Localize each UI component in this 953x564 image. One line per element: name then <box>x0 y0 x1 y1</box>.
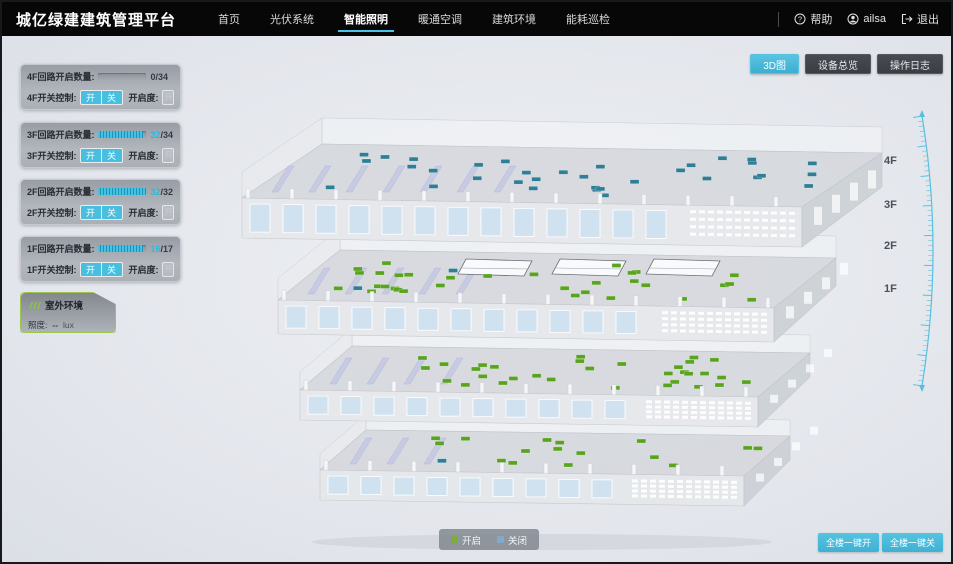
column <box>304 380 308 390</box>
column <box>700 386 704 396</box>
perforation <box>641 495 647 498</box>
perforation <box>744 234 750 237</box>
facade-window <box>526 479 546 497</box>
light-marker-closed <box>532 177 541 181</box>
side-perforation <box>840 263 848 275</box>
perforation <box>691 416 697 419</box>
facade-window <box>616 311 636 333</box>
perforation <box>734 318 740 321</box>
column <box>282 290 286 300</box>
column <box>546 294 550 304</box>
perforation <box>789 212 795 215</box>
perforation <box>659 495 665 498</box>
perforation <box>704 480 710 483</box>
perforation <box>731 496 737 499</box>
master-button-2[interactable]: 全楼一键关 <box>882 533 943 552</box>
perforation <box>690 210 696 213</box>
light-marker-closed <box>529 186 538 190</box>
floor-panel-3F: 3F回路开启数量:32/343F开关控制:开关开启度:% <box>20 122 181 168</box>
light-marker-open <box>641 283 650 287</box>
perforation <box>780 212 786 215</box>
perforation <box>655 405 661 408</box>
perforation <box>722 486 728 489</box>
light-marker-closed <box>449 269 458 273</box>
switch-row-4F: 4F开关控制:开关开启度:% <box>27 90 174 105</box>
switch-off-button-3F[interactable]: 关 <box>102 149 122 162</box>
perforation <box>677 495 683 498</box>
switch-off-button-4F[interactable]: 关 <box>102 91 122 104</box>
light-marker-open <box>743 446 752 450</box>
user-name: ailsa <box>863 13 886 25</box>
openness-input-1F[interactable] <box>163 263 174 276</box>
facade-window <box>493 478 513 496</box>
light-marker-closed <box>326 185 335 189</box>
perforation <box>762 226 768 229</box>
light-marker-open <box>442 379 451 383</box>
perforation <box>695 495 701 498</box>
user-menu[interactable]: ailsa <box>847 13 886 25</box>
column <box>290 189 294 199</box>
light-marker-open <box>571 293 580 297</box>
perforation <box>650 490 656 493</box>
ruler-tick <box>920 131 924 132</box>
light-marker-closed <box>437 459 446 463</box>
floor-label-3F[interactable]: 3F <box>884 199 897 211</box>
perforation <box>695 485 701 488</box>
legend-swatch <box>497 536 504 543</box>
switch-button-group: 开关 <box>80 148 123 163</box>
perforation <box>717 226 723 229</box>
column <box>588 464 592 474</box>
light-marker-closed <box>473 176 482 180</box>
nav-item-1[interactable]: 首页 <box>218 2 240 36</box>
openness-input-3F[interactable] <box>163 149 174 162</box>
perforation <box>691 406 697 409</box>
column <box>774 197 778 207</box>
escalator-opening <box>458 259 532 276</box>
perforation <box>698 318 704 321</box>
light-marker-open <box>664 371 673 375</box>
perforation <box>680 311 686 314</box>
light-marker-open <box>355 271 364 275</box>
help-icon: ? <box>794 13 806 25</box>
light-marker-open <box>375 271 384 275</box>
light-marker-open <box>446 276 455 280</box>
light-marker-closed <box>514 180 523 184</box>
perforation <box>709 401 715 404</box>
perforation <box>771 212 777 215</box>
facade-window <box>583 311 603 333</box>
perforation <box>700 401 706 404</box>
column <box>422 191 426 201</box>
perforation <box>668 480 674 483</box>
perforation <box>632 484 638 487</box>
facade-window <box>341 397 361 415</box>
light-marker-closed <box>353 286 362 290</box>
light-marker-closed <box>522 171 531 175</box>
perforation <box>641 480 647 483</box>
perforation <box>655 410 661 413</box>
perforation <box>725 318 731 321</box>
facade-window <box>382 206 402 234</box>
perforation <box>722 496 728 499</box>
light-marker-closed <box>676 168 685 172</box>
floor-label-4F[interactable]: 4F <box>884 155 897 167</box>
perforation <box>735 233 741 236</box>
switch-on-button-1F[interactable]: 开 <box>81 263 101 276</box>
perforation <box>725 312 731 315</box>
ruler-tick <box>921 176 930 177</box>
app-window: 城亿绿建建筑管理平台 首页光伏系统智能照明暖通空调建筑环境能耗巡检 ? 帮助 a… <box>0 0 953 564</box>
outdoor-env-panel: 室外环境 照度: -- lux <box>20 292 116 333</box>
light-marker-open <box>730 273 739 277</box>
perforation <box>718 416 724 419</box>
perforation <box>709 406 715 409</box>
column <box>436 382 440 392</box>
perforation <box>700 406 706 409</box>
light-marker-open <box>685 360 694 364</box>
column <box>722 297 726 307</box>
circuit-progress-bar <box>98 188 146 195</box>
facade-window <box>646 210 666 238</box>
facade-window <box>415 207 435 235</box>
facade-window <box>283 205 303 233</box>
openness-label: 开启度: <box>129 91 159 104</box>
openness-input-group: % <box>162 262 174 277</box>
side-perforation <box>792 442 800 450</box>
side-perforation <box>822 277 830 289</box>
nav-item-2[interactable]: 光伏系统 <box>270 2 314 36</box>
master-button-1[interactable]: 全楼一键开 <box>818 533 879 552</box>
light-marker-closed <box>407 165 416 169</box>
light-marker-closed <box>362 159 371 163</box>
switch-button-group: 开关 <box>80 262 123 277</box>
ruler-tick <box>918 121 922 122</box>
perforation <box>680 317 686 320</box>
perforation <box>671 329 677 332</box>
light-marker-open <box>436 283 445 287</box>
light-marker-open <box>684 372 693 376</box>
column <box>348 381 352 391</box>
facade-window <box>514 208 534 236</box>
floor-label-1F[interactable]: 1F <box>884 283 897 295</box>
light-marker-open <box>576 451 585 455</box>
perforation <box>771 227 777 230</box>
perforation <box>743 319 749 322</box>
perforation <box>731 486 737 489</box>
perforation <box>752 313 758 316</box>
facade-window <box>349 206 369 234</box>
column <box>368 461 372 471</box>
column <box>412 461 416 471</box>
side-perforation <box>756 474 764 482</box>
perforation <box>699 218 705 221</box>
side-perforation <box>770 395 778 403</box>
side-perforation <box>804 292 812 304</box>
light-marker-closed <box>687 163 696 167</box>
light-marker-open <box>592 281 601 285</box>
light-marker-open <box>628 271 637 275</box>
perforation <box>726 211 732 214</box>
perforation <box>700 416 706 419</box>
floor-label-2F[interactable]: 2F <box>884 240 897 252</box>
perforation <box>722 491 728 494</box>
light-marker-open <box>404 273 413 277</box>
ruler-tick <box>918 380 922 381</box>
header-user-area: ? 帮助 ailsa 退出 <box>778 11 951 27</box>
facade-window <box>250 204 270 232</box>
facade-window <box>308 396 328 414</box>
legend-item-2: 关闭 <box>497 533 527 547</box>
facade-window <box>473 399 493 417</box>
perforation <box>771 219 777 222</box>
perforation <box>646 400 652 403</box>
column <box>720 466 724 476</box>
switch-on-button-3F[interactable]: 开 <box>81 149 101 162</box>
column <box>642 194 646 204</box>
perforation <box>713 486 719 489</box>
nav-item-3[interactable]: 智能照明 <box>344 2 388 36</box>
perforation <box>734 312 740 315</box>
perforation <box>691 411 697 414</box>
building-3d-view[interactable] <box>2 36 951 562</box>
perforation <box>698 330 704 333</box>
ruler-tick <box>920 370 924 371</box>
light-marker-closed <box>501 159 510 163</box>
perforation <box>699 210 705 213</box>
perforation <box>722 481 728 484</box>
escalator-opening <box>646 259 720 276</box>
header-divider <box>778 12 779 27</box>
view-button-2[interactable]: 设备总览 <box>805 54 871 74</box>
light-marker-open <box>576 355 585 359</box>
column <box>392 381 396 391</box>
help-button[interactable]: ? 帮助 <box>794 11 832 27</box>
perforation <box>682 401 688 404</box>
light-marker-open <box>543 438 552 442</box>
perforation <box>717 218 723 221</box>
light-marker-open <box>353 267 362 271</box>
column <box>466 192 470 202</box>
building-floor-2F <box>300 328 832 427</box>
ruler-tick <box>921 136 925 137</box>
perforation <box>707 318 713 321</box>
perforation <box>641 485 647 488</box>
perforation <box>735 218 741 221</box>
illuminance-label: 照度: <box>28 319 47 331</box>
ruler-tick <box>917 146 926 147</box>
circuit-progress-bar <box>98 245 146 252</box>
logout-button[interactable]: 退出 <box>901 11 939 27</box>
facade-window <box>352 307 372 329</box>
perforation <box>708 210 714 213</box>
light-marker-open <box>394 273 403 277</box>
view-button-3[interactable]: 操作日志 <box>877 54 943 74</box>
light-marker-open <box>581 290 590 294</box>
perforation <box>771 234 777 237</box>
light-marker-open <box>725 282 734 286</box>
perforation <box>735 211 741 214</box>
perforation <box>646 415 652 418</box>
facade-window <box>385 308 405 330</box>
perforation <box>677 485 683 488</box>
switch-row-2F: 2F开关控制:开关开启度:% <box>27 205 174 220</box>
perforation <box>789 227 795 230</box>
ruler-tick <box>923 156 927 157</box>
light-marker-open <box>478 363 487 367</box>
perforation <box>726 233 732 236</box>
perforation <box>689 318 695 321</box>
circuit-row-1F: 1F回路开启数量:16/17 <box>27 242 174 255</box>
perforation <box>673 401 679 404</box>
switch-on-button-2F[interactable]: 开 <box>81 206 101 219</box>
perforation <box>673 406 679 409</box>
light-marker-closed <box>718 156 727 160</box>
circuit-row-3F: 3F回路开启数量:32/34 <box>27 128 174 141</box>
perforation <box>780 227 786 230</box>
column <box>524 383 528 393</box>
column <box>502 294 506 304</box>
perforation <box>717 233 723 236</box>
light-marker-open <box>382 261 391 265</box>
perforation <box>725 324 731 327</box>
openness-input-4F[interactable] <box>163 91 174 104</box>
column <box>632 464 636 474</box>
perforation <box>761 313 767 316</box>
outdoor-panel-title: 室外环境 <box>28 298 108 312</box>
side-perforation <box>868 170 876 188</box>
perforation <box>743 325 749 328</box>
side-perforation <box>788 380 796 388</box>
side-perforation <box>786 306 794 318</box>
perforation <box>708 233 714 236</box>
perforation <box>762 234 768 237</box>
legend-item-1: 开启 <box>451 533 481 547</box>
legend-swatch <box>451 536 458 543</box>
switch-row-1F: 1F开关控制:开关开启度:% <box>27 262 174 277</box>
column <box>730 196 734 206</box>
perforation <box>664 416 670 419</box>
user-avatar-icon <box>847 13 859 25</box>
perforation <box>762 211 768 214</box>
perforation <box>731 481 737 484</box>
circuit-count-value: 16/17 <box>151 244 174 254</box>
svg-text:?: ? <box>798 15 802 24</box>
facade-window <box>361 477 381 495</box>
building-master-buttons: 全楼一键开全楼一键关 <box>818 533 943 552</box>
perforation <box>682 416 688 419</box>
column <box>686 195 690 205</box>
building-floor-1F <box>320 414 818 506</box>
perforation <box>736 402 742 405</box>
perforation <box>753 219 759 222</box>
openness-input-2F[interactable] <box>163 206 174 219</box>
ruler-tick <box>921 360 925 361</box>
perforation <box>716 324 722 327</box>
perforation <box>671 323 677 326</box>
light-marker-closed <box>474 163 483 167</box>
light-marker-open <box>399 289 408 293</box>
light-marker-open <box>532 374 541 378</box>
circuit-count-label: 2F回路开启数量: <box>27 185 95 198</box>
switch-button-group: 开关 <box>80 205 123 220</box>
perforation <box>736 417 742 420</box>
light-marker-open <box>471 367 480 371</box>
light-marker-closed <box>747 158 756 162</box>
column <box>370 291 374 301</box>
perforation <box>718 401 724 404</box>
facade-window <box>484 309 504 331</box>
perforation <box>659 490 665 493</box>
facade-window <box>440 398 460 416</box>
side-perforation <box>814 207 822 225</box>
perforation <box>745 417 751 420</box>
circuit-count-label: 1F回路开启数量: <box>27 242 95 255</box>
switch-off-button-1F[interactable]: 关 <box>102 263 122 276</box>
nav-item-4[interactable]: 暖通空调 <box>418 2 462 36</box>
illuminance-row: 照度: -- lux <box>28 319 108 331</box>
perforation <box>744 226 750 229</box>
perforation <box>745 407 751 410</box>
perforation <box>717 211 723 214</box>
facade-window <box>572 400 592 418</box>
perforation <box>682 406 688 409</box>
column <box>634 296 638 306</box>
perforation <box>680 329 686 332</box>
perforation <box>704 490 710 493</box>
perforation <box>752 325 758 328</box>
light-marker-open <box>435 441 444 445</box>
view-button-1[interactable]: 3D图 <box>750 54 799 74</box>
nav-item-6[interactable]: 能耗巡检 <box>566 2 610 36</box>
switch-on-button-4F[interactable]: 开 <box>81 91 101 104</box>
illuminance-value: -- <box>52 320 58 330</box>
perforation <box>655 400 661 403</box>
perforation <box>673 416 679 419</box>
perforation <box>716 312 722 315</box>
column <box>678 296 682 306</box>
nav-item-5[interactable]: 建筑环境 <box>492 2 536 36</box>
switch-off-button-2F[interactable]: 关 <box>102 206 122 219</box>
side-perforation <box>774 458 782 466</box>
perforation <box>699 233 705 236</box>
facade-window <box>559 479 579 497</box>
circuit-row-4F: 4F回路开启数量:0/34 <box>27 70 174 83</box>
perforation <box>780 234 786 237</box>
light-marker-open <box>650 455 659 459</box>
light-marker-closed <box>360 153 369 157</box>
logout-icon <box>901 13 913 25</box>
light-marker-open <box>575 359 584 363</box>
openness-input-group: % <box>162 90 174 105</box>
zoom-scale-ruler <box>908 110 950 392</box>
column <box>590 295 594 305</box>
light-marker-open <box>478 374 487 378</box>
column <box>544 463 548 473</box>
light-marker-closed <box>579 175 588 179</box>
building-floor-4F <box>242 118 882 247</box>
perforation <box>713 481 719 484</box>
light-marker-open <box>440 362 449 366</box>
light-marker-open <box>630 279 639 283</box>
light-marker-open <box>555 441 564 445</box>
perforation <box>752 331 758 334</box>
light-marker-open <box>747 298 756 302</box>
facade-window <box>328 476 348 494</box>
perforation <box>686 480 692 483</box>
perforation <box>708 218 714 221</box>
facade-window <box>319 307 339 329</box>
